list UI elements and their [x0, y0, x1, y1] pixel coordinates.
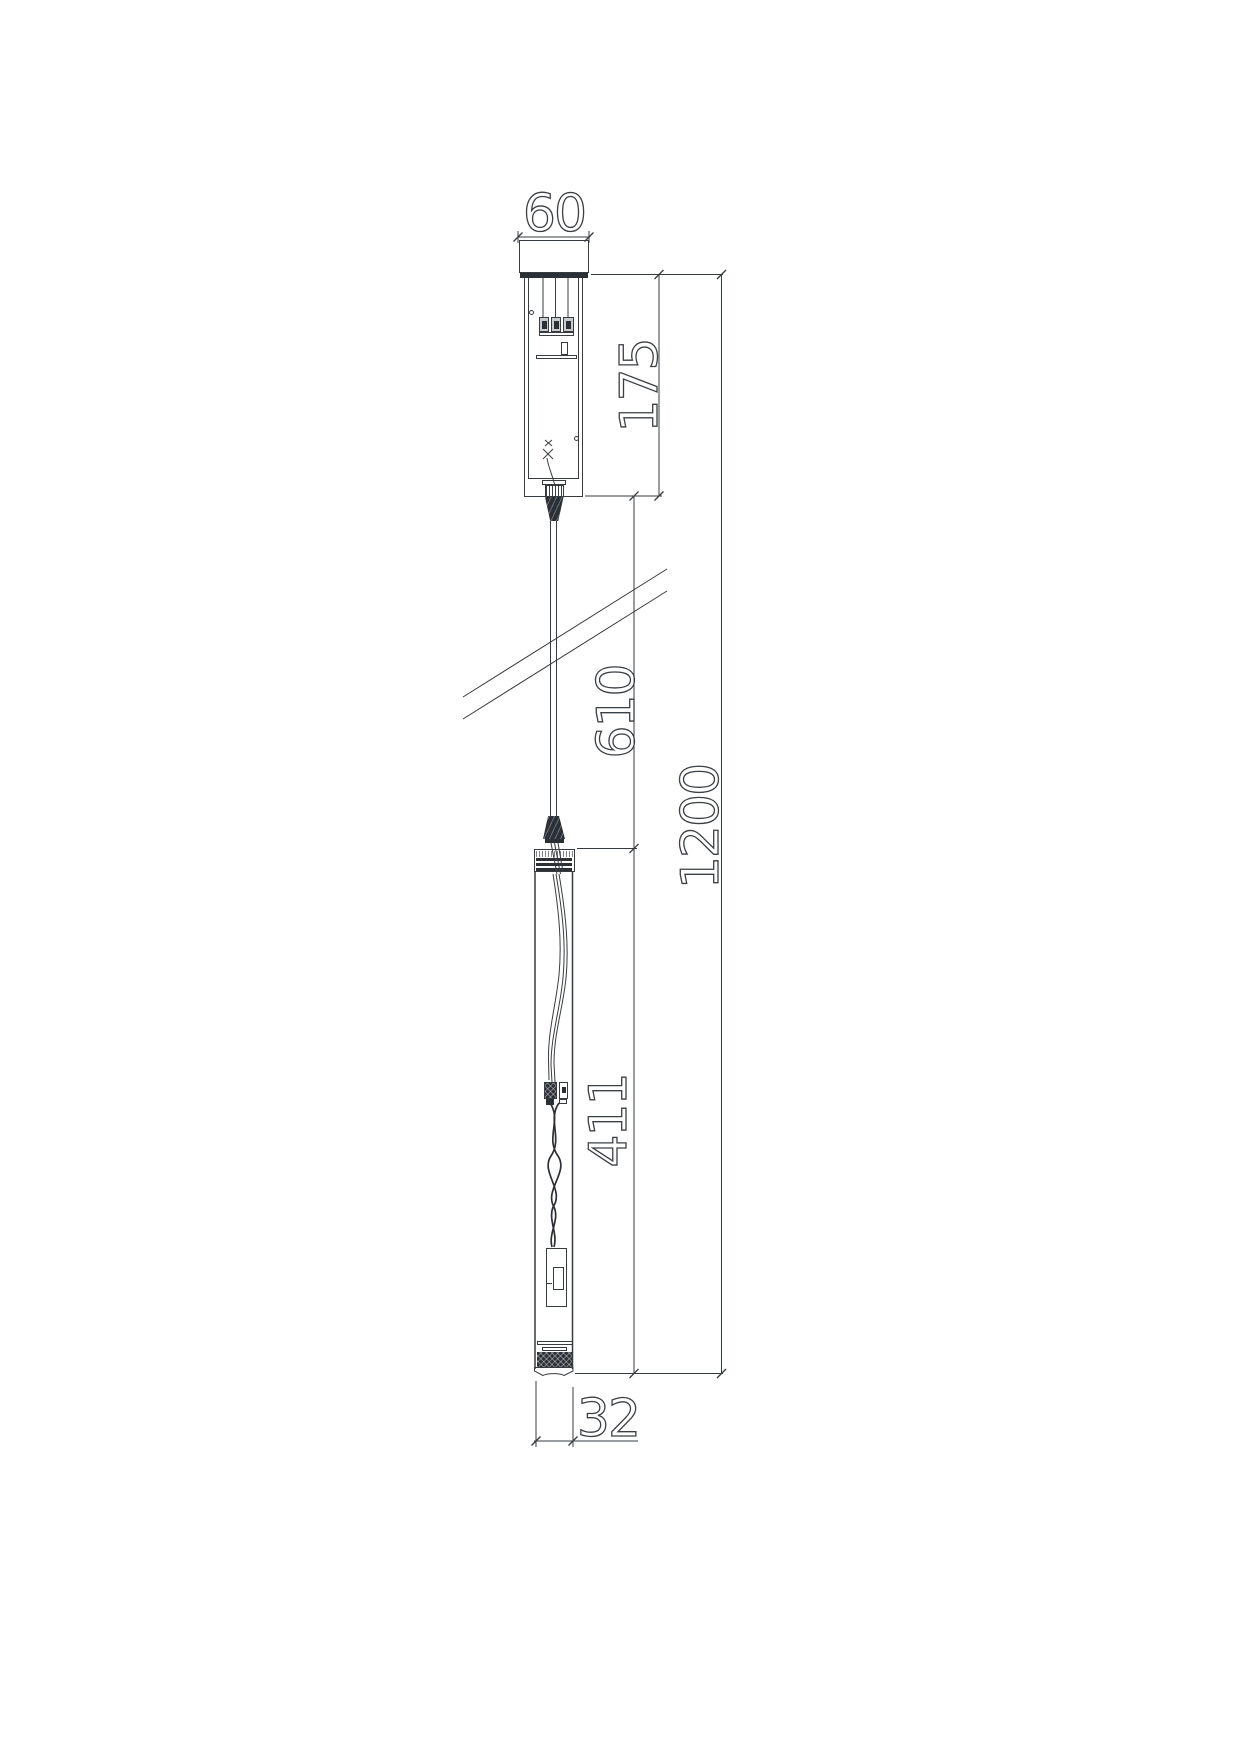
- dim-canopy-width-label: 60: [494, 188, 614, 240]
- suspension-cable: [551, 521, 557, 817]
- linework-layer: [0, 0, 1241, 1754]
- dim-tube-length-label: 411: [583, 1041, 635, 1201]
- dim-tube-diameter-label: 32: [548, 1393, 668, 1445]
- dim-overall-drop-label: 1200: [675, 727, 727, 927]
- bottom-cap: [535, 1368, 574, 1376]
- dim-canopy-height-label: 175: [614, 306, 666, 466]
- cap-feed-wires: [551, 843, 563, 874]
- dim-cable-drop-label: 610: [591, 632, 643, 792]
- tube-wires: [548, 874, 567, 1082]
- dimension-drawing-canvas: 60 175 610 411 1200 32: [0, 0, 1241, 1754]
- twisted-wires: [548, 1103, 561, 1247]
- canopy-wires: [543, 277, 568, 484]
